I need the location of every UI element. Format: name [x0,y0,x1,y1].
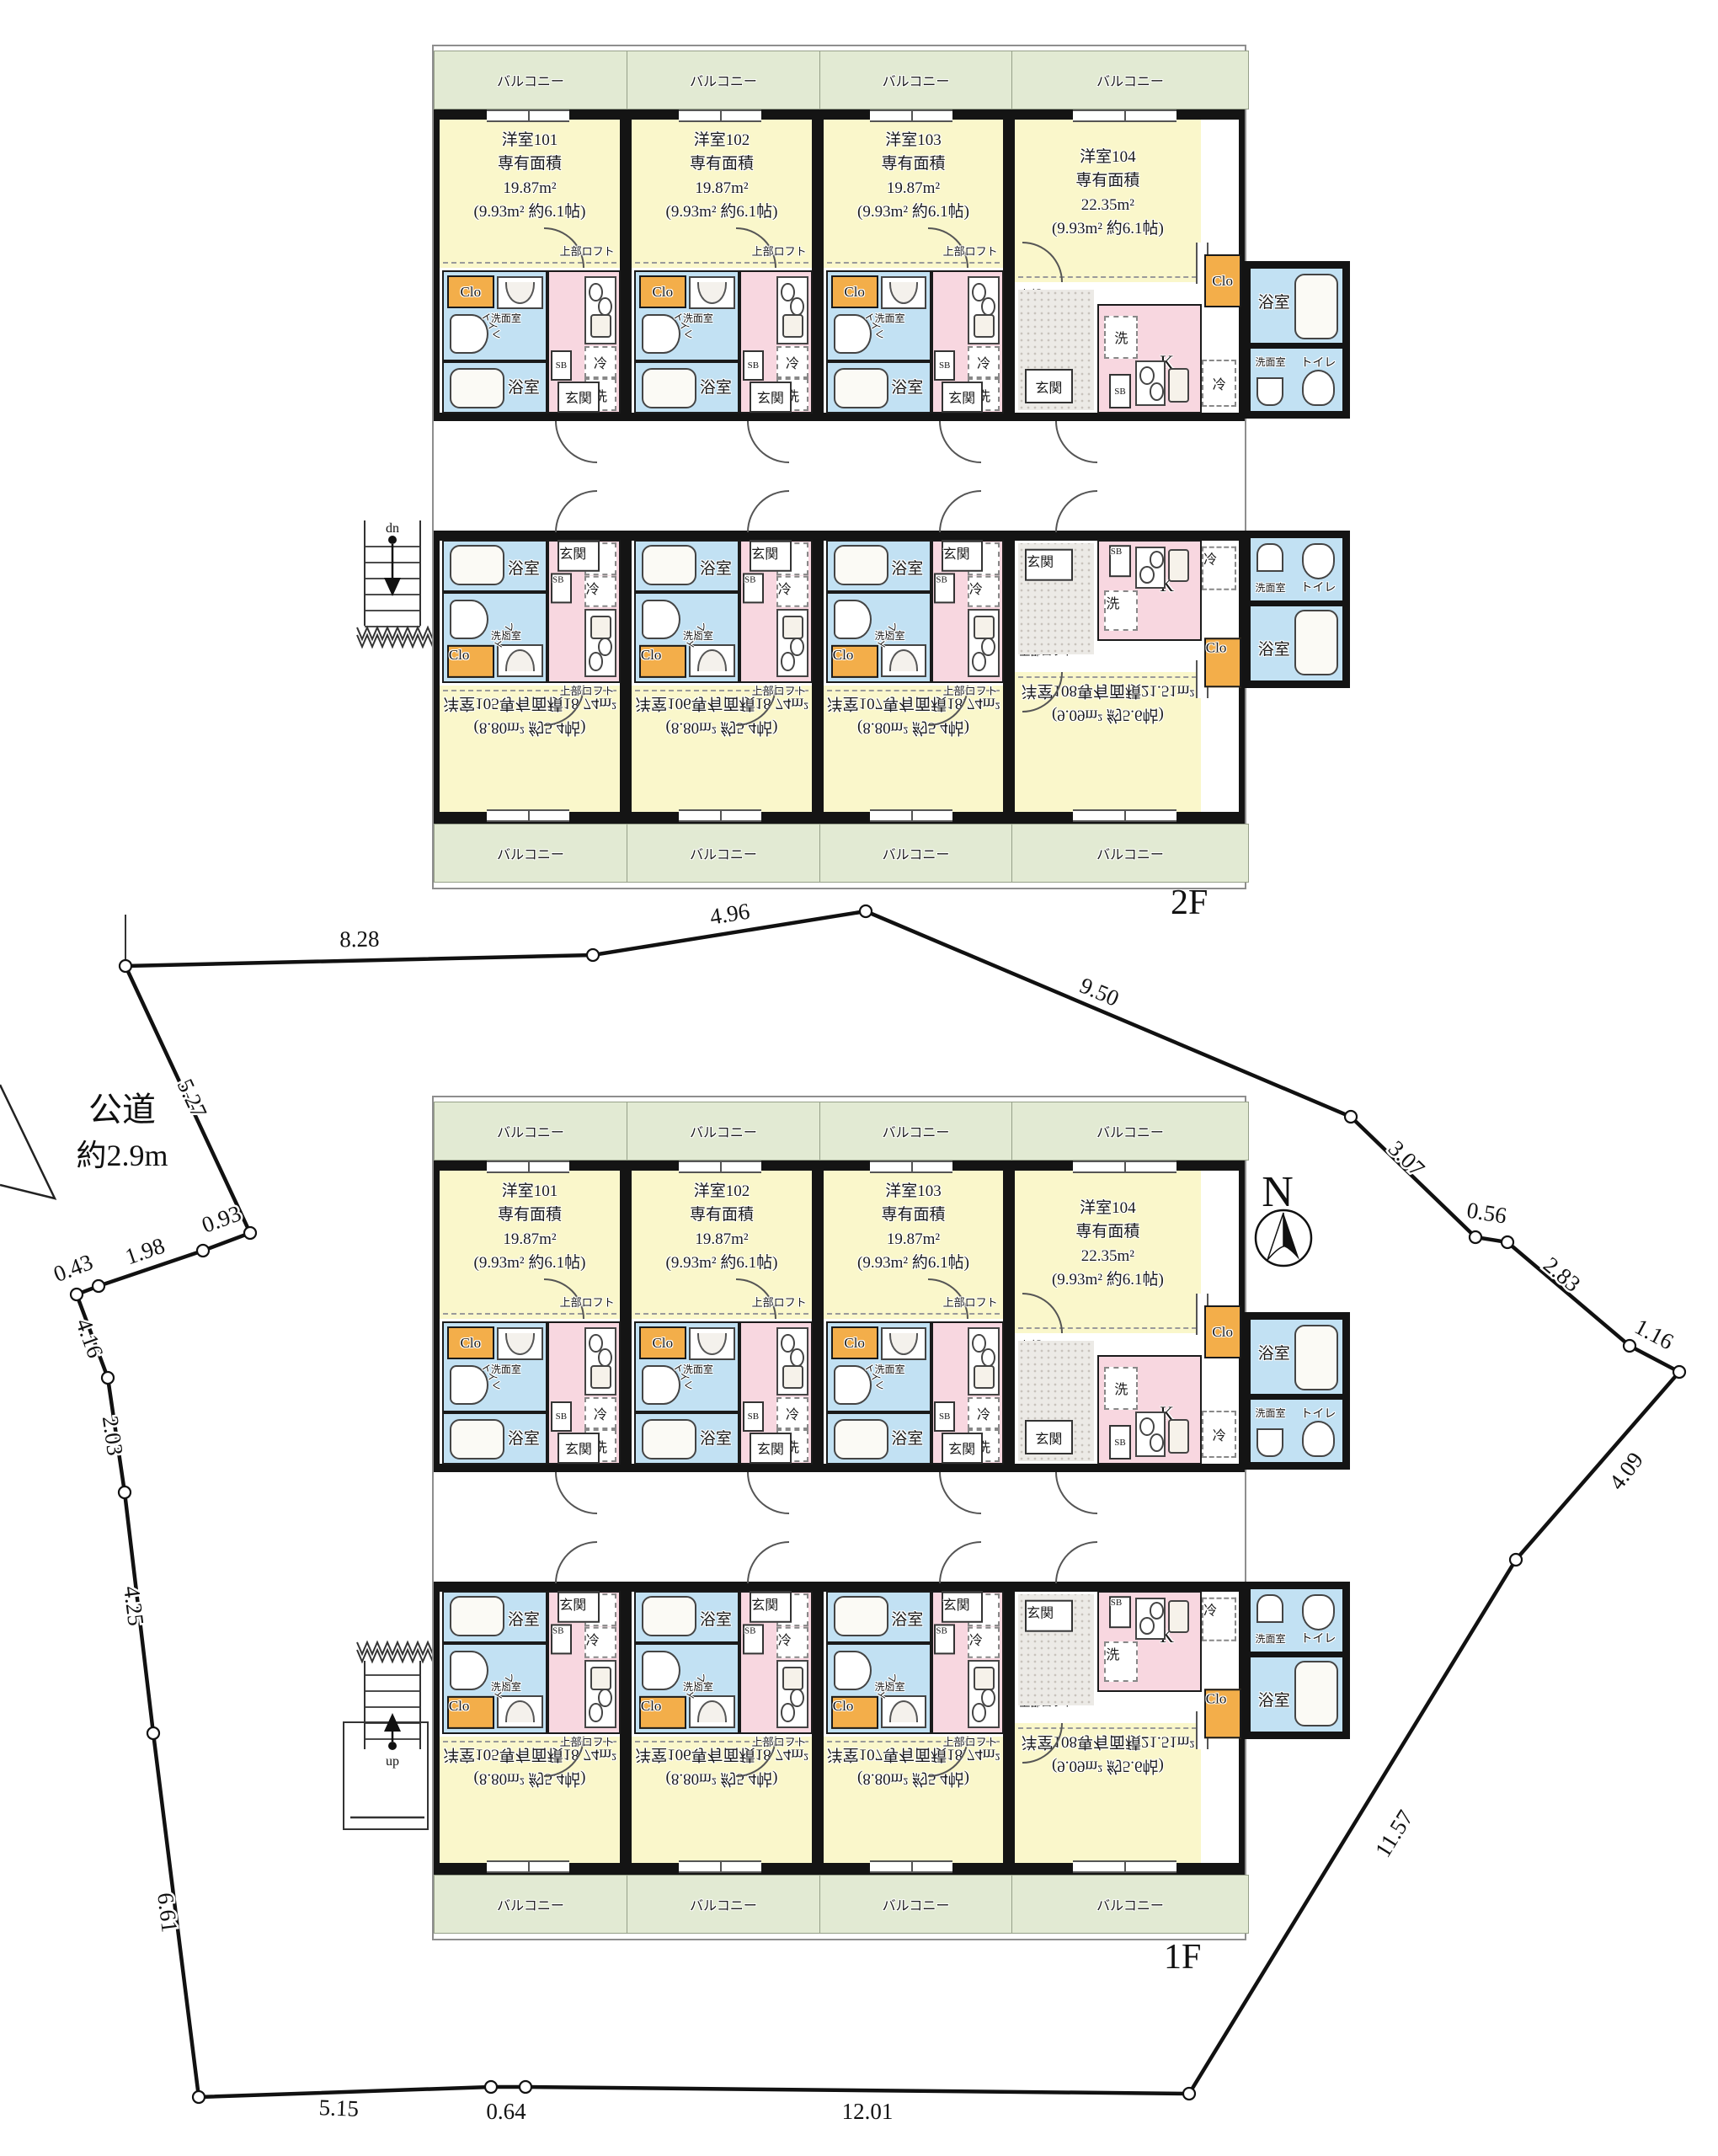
room-name: 洋室105 [443,1742,499,1766]
bathtub-icon [1294,1661,1338,1726]
sink-bowl-icon [889,1333,918,1354]
bath-label: 浴室 [1258,290,1290,312]
unit-108: 洋室108専有面積21.51m²(9.09m² 約5.6帖)上部ロフトClo玄関… [1015,541,1239,812]
entrance-label: 玄関 [942,1592,983,1623]
toilet-label: トイレ [1300,354,1336,371]
balcony-window [487,1161,569,1173]
kitchen-area: 冷洗SB玄関 [931,540,1004,683]
road-width: 約2.9m [51,1131,194,1175]
balcony-label: バルコニー [883,1121,950,1141]
wet-area: Clo洗面室トイレ [826,592,931,682]
entrance-label: 玄関 [942,1433,983,1464]
closet-box: Clo [1204,638,1241,687]
kitchen-sink-icon [974,1667,995,1690]
room-door-arc [1022,242,1063,282]
service-area: Clo洗面室トイレ浴室冷洗SB玄関 [824,268,1003,413]
service-area: Clo洗面室トイレ浴室冷洗SB玄関 [632,541,812,686]
loft-note: 上部ロフト [752,1294,807,1310]
balcony-label: バルコニー [1096,1894,1164,1914]
entrance-label: 玄関 [750,1433,791,1464]
balcony-label: バルコニー [497,1894,564,1914]
dimension-label: 4.09 [1604,1448,1648,1495]
unit-103: 洋室103専有面積19.87m²(9.93m² 約6.1帖)上部ロフトClo洗面… [824,120,1003,413]
loft-dashed-line [827,1313,1000,1315]
toilet-icon [1302,1594,1335,1630]
closet-box: Clo [831,1326,878,1359]
balcony-cell: バルコニー [434,1102,627,1161]
room-area-caption: 専有面積 [824,1203,1003,1228]
room-area: 洋室106専有面積18.74m²(8.80m² 約5.4帖) [632,686,812,812]
closet-box: Clo [639,645,686,678]
service-area: Clo洗面室トイレ浴室冷洗SB玄関 [824,1319,1003,1464]
kitchen-sink-icon [590,1365,611,1389]
toilet-label: トイレ [1300,1630,1336,1646]
closet-box: Clo [831,645,878,678]
stairs-down: dn [357,520,433,647]
closet-box: Clo [1204,1689,1241,1738]
balcony-window [679,809,761,822]
stove-burner-icon [1150,382,1165,401]
balcony-window [870,1161,952,1173]
room-name: 洋室103 [824,129,1003,153]
service-area: Clo洗面室トイレ浴室冷洗SB玄関 [824,541,1003,686]
annex-washroom: 洗面室トイレ [1251,538,1342,600]
stove-icon [1135,1412,1165,1457]
sink-bowl-icon [697,1333,726,1354]
room-area-value: 19.87m² [632,1228,812,1252]
room-area: 洋室106専有面積18.74m²(8.80m² 約5.4帖) [632,1737,812,1863]
stove-burner-icon [598,638,611,656]
bath-label: 浴室 [891,375,923,398]
shoe-box: SB [934,573,955,603]
stove-burner-icon [1150,551,1165,568]
kitchen-area: 冷洗SB玄関 [739,540,812,683]
sink-bowl-icon [505,1700,534,1721]
closet-box: Clo [1204,254,1241,307]
fridge-space: 冷 [776,1627,809,1658]
wet-area: Clo洗面室トイレ [442,270,547,360]
shoe-box: SB [1109,545,1132,577]
balcony-label: バルコニー [690,843,757,863]
entrance-label: 玄関 [1025,1420,1072,1454]
room-loft-area: (9.93m² 約6.1帖) [440,200,620,225]
stove-icon [1135,547,1165,589]
stove-icon [1135,1598,1165,1640]
bathroom: 浴室 [826,1412,931,1465]
boundary-vertex [485,2081,497,2093]
wet-area: Clo洗面室トイレ [634,1321,739,1412]
entrance-label: 玄関 [1025,549,1072,581]
balcony-cell: バルコニー [1011,1102,1249,1161]
dimension-label: 3.07 [1384,1135,1430,1181]
balcony-strip-bottom: バルコニーバルコニーバルコニーバルコニー [434,824,1245,883]
bathtub-icon [834,1596,888,1636]
kitchen-counter-icon [776,609,809,676]
entry-hall: 玄関 [1018,1594,1094,1705]
room-loft-area: (8.80m² 約5.4帖) [474,1766,586,1790]
room-label: 洋室103専有面積19.87m²(9.93m² 約6.1帖) [824,1180,1003,1276]
boundary-vertex [1624,1340,1635,1352]
bathroom: 浴室 [442,540,547,593]
fridge-space: 冷 [776,576,809,607]
room-area-value: 19.87m² [440,177,620,201]
wet-area: Clo洗面室トイレ [634,592,739,682]
unit-106: 洋室106専有面積18.74m²(8.80m² 約5.4帖)上部ロフトClo洗面… [632,1592,812,1863]
entrance-label: 玄関 [558,1433,599,1464]
service-area: Clo洗面室トイレ浴室冷洗SB玄関 [632,1319,812,1464]
bathroom: 浴室 [634,1591,739,1644]
room-area-value: 22.35m² [1015,1245,1201,1269]
toilet-icon [642,1651,680,1690]
room-area-value: 22.35m² [1015,194,1201,218]
stove-burner-icon [1139,366,1155,385]
unit-101: 洋室101専有面積19.87m²(9.93m² 約6.1帖)上部ロフトClo洗面… [440,1171,620,1464]
loft-note: 上部ロフト [943,1294,998,1310]
room-loft-area: (9.93m² 約6.1帖) [824,1251,1003,1276]
stair-arrow-start [388,1742,397,1750]
washroom-label: 洗面室 [1255,580,1285,595]
balcony-window [870,1860,952,1873]
road-name: 公道 [51,1082,194,1131]
boundary-vertex [93,1280,104,1292]
washer-space: 洗 [1104,590,1138,631]
dimension-label: 4.16 [71,1315,108,1362]
shoe-box: SB [551,573,572,603]
shoe-box: SB [551,350,572,381]
room-area: 洋室104専有面積22.35m²(9.93m² 約6.1帖) [1015,1171,1201,1333]
stove-burner-icon [790,1689,803,1707]
room-name: 洋室106 [635,691,691,715]
bath-label: 浴室 [891,556,923,579]
floor-label-1f: 1F [1164,1937,1201,1977]
room-area: 洋室105専有面積18.74m²(8.80m² 約5.4帖) [440,686,620,812]
unit-104: 洋室104専有面積22.35m²(9.93m² 約6.1帖)上部ロフトClo玄関… [1015,120,1239,413]
balcony-cell: バルコニー [627,1102,819,1161]
wet-area: Clo洗面室トイレ [442,1643,547,1733]
unit-102: 洋室102専有面積19.87m²(9.93m² 約6.1帖)上部ロフトClo洗面… [632,1171,812,1464]
loft-dashed-line [443,1313,616,1315]
entrance-label: 玄関 [1025,1600,1072,1632]
sink-bowl-icon [505,649,534,670]
sink-bowl-icon [505,282,534,303]
room-name: 洋室106 [635,1742,691,1766]
washroom-label: 洗面室 [1255,355,1285,369]
room-name: 洋室104 [1015,146,1201,170]
room-area: 洋室108専有面積21.51m²(9.09m² 約5.6帖) [1015,1723,1201,1863]
balcony-window [679,1860,761,1873]
stove-burner-icon [981,638,995,656]
fridge-space: 冷 [776,1397,809,1428]
boundary-vertex [193,2091,205,2103]
loft-note: 上部ロフト [752,243,807,259]
wet-area: Clo洗面室トイレ [442,592,547,682]
loft-note: 上部ロフト [943,243,998,259]
kitchen-counter-icon [584,1660,617,1727]
room-loft-area: (9.93m² 約6.1帖) [632,200,812,225]
room-label: 洋室104専有面積22.35m²(9.93m² 約6.1帖) [1015,1197,1201,1293]
bathroom: 浴室 [826,361,931,414]
fridge-space: 冷 [584,1627,617,1658]
bathtub-icon [1294,1325,1338,1390]
kitchen-sink-icon [1168,1601,1190,1634]
balcony-label: バルコニー [497,843,564,863]
kitchen-area: 冷洗SB玄関 [547,270,620,414]
service-area: Clo洗面室トイレ浴室冷洗SB玄関 [632,1592,812,1737]
toilet-label: トイレ [1300,579,1336,595]
dimension-label: 9.50 [1076,973,1123,1011]
bath-label: 浴室 [891,1426,923,1449]
fridge-space: 冷 [584,576,617,607]
toilet-icon [1302,1421,1335,1457]
bathroom: 浴室 [442,361,547,414]
balcony-label: バルコニー [883,843,950,863]
room-label: 洋室103専有面積19.87m²(9.93m² 約6.1帖) [824,129,1003,225]
balcony-window [679,109,761,122]
balcony-window [870,809,952,822]
room-area-value: 19.87m² [824,1228,1003,1252]
porch [344,1722,428,1829]
unit-106: 洋室106専有面積18.74m²(8.80m² 約5.4帖)上部ロフトClo洗面… [632,541,812,812]
kitchen-sink-icon [782,1365,803,1389]
stove-burner-icon [1139,1617,1155,1635]
kitchen-area: 冷洗SB玄関 [739,1321,812,1465]
sink-icon [1256,1594,1283,1623]
balcony-window [487,1860,569,1873]
entrance-label: 玄関 [942,541,983,572]
shoe-box: SB [1109,1425,1132,1460]
bathtub-icon [1294,274,1338,339]
wet-area: Clo洗面室トイレ [826,1321,931,1412]
kitchen-counter-icon [584,1327,617,1395]
closet-box: Clo [639,1326,686,1359]
shoe-box: SB [743,1401,764,1432]
balcony-cell: バルコニー [1011,824,1249,883]
balcony-cell: バルコニー [627,824,819,883]
stair-direction-label: up [386,1754,399,1769]
bath-annex: 浴室洗面室トイレ [1243,531,1350,688]
balcony-label: バルコニー [883,70,950,90]
room-name: 洋室107 [827,691,883,715]
wet-area: Clo洗面室トイレ [826,270,931,360]
kitchen-sink-icon [974,314,995,338]
closet-box: Clo [831,275,878,308]
sink-bowl-icon [697,649,726,670]
room-area: 洋室105専有面積18.74m²(8.80m² 約5.4帖) [440,1737,620,1863]
bathtub-icon [834,545,888,584]
boundary-vertex [1673,1366,1685,1378]
stove-burner-icon [1139,1417,1155,1436]
bathroom: 浴室 [826,1591,931,1644]
service-area: Clo洗面室トイレ浴室冷洗SB玄関 [440,1592,620,1737]
kitchen-sink-icon [974,1365,995,1389]
shoe-box: SB [934,1401,955,1432]
room-loft-area: (9.09m² 約5.6帖) [1052,1753,1164,1777]
dimension-label: 2.83 [1539,1251,1585,1296]
service-area: Clo洗面室トイレ浴室冷洗SB玄関 [824,1592,1003,1737]
bath-annex: 浴室洗面室トイレ [1243,261,1350,419]
room-area-value: 19.87m² [632,177,812,201]
room-loft-area: (9.93m² 約6.1帖) [1015,1268,1201,1293]
balcony-window [1073,1860,1176,1873]
kitchen-counter-icon [776,276,809,344]
kitchen-counter-icon [776,1660,809,1727]
room-label: 洋室102専有面積19.87m²(9.93m² 約6.1帖) [632,129,812,225]
room-area-caption: 専有面積 [824,152,1003,177]
room-area-caption: 専有面積 [1077,678,1141,702]
stove-burner-icon [981,1689,995,1707]
bath-label: 浴室 [1258,1341,1290,1364]
fridge-space: 冷 [968,576,1000,607]
boundary-vertex [147,1727,159,1739]
balcony-label: バルコニー [1096,1121,1164,1141]
bathroom: 浴室 [634,540,739,593]
bath-annex-inner: 浴室洗面室トイレ [1251,538,1342,680]
sink-bowl-icon [889,282,918,303]
shoe-box: SB [934,1624,955,1654]
wet-area: Clo洗面室トイレ [826,1643,931,1733]
room-area: 洋室107専有面積18.74m²(8.80m² 約5.4帖) [824,686,1003,812]
kitchen-sink-icon [782,1667,803,1690]
loft-dashed-line [827,262,1000,264]
kitchen-area: 冷洗SB玄関 [739,270,812,414]
room-area: 洋室108専有面積21.51m²(9.09m² 約5.6帖) [1015,672,1201,812]
sink-icon [1256,1428,1283,1457]
entrance-label: 玄関 [558,1592,599,1623]
annex-bathroom: 浴室 [1251,1320,1342,1394]
kitchen-area: 冷洗SB玄関 [739,1591,812,1734]
boundary-vertex [860,905,872,917]
bath-annex-inner: 浴室洗面室トイレ [1251,269,1342,411]
boundary-vertex [1510,1554,1522,1566]
room-area: 洋室107専有面積18.74m²(8.80m² 約5.4帖) [824,1737,1003,1863]
boundary-vertex [102,1372,114,1384]
room-name: 洋室102 [632,129,812,153]
loft-note: 上部ロフト [560,243,615,259]
kitchen-sink-icon [782,314,803,338]
sink-bowl-icon [697,1700,726,1721]
fridge-space: 冷 [968,346,1000,377]
balcony-cell: バルコニー [819,1875,1011,1934]
room-loft-area: (9.93m² 約6.1帖) [824,200,1003,225]
room-loft-area: (9.09m² 約5.6帖) [1052,702,1164,726]
balcony-label: バルコニー [690,1121,757,1141]
balcony-window [487,809,569,822]
kitchen-area: 冷洗SB玄関 [547,1321,620,1465]
balcony-cell: バルコニー [819,824,1011,883]
bathtub-icon [642,1419,696,1459]
wet-area: Clo洗面室トイレ [442,1321,547,1412]
balcony-cell: バルコニー [819,1102,1011,1161]
road-label: 公道 約2.9m [51,1082,194,1175]
room-loft-area: (9.93m² 約6.1帖) [440,1251,620,1276]
balcony-label: バルコニー [497,70,564,90]
balcony-window [679,1161,761,1173]
balcony-label: バルコニー [690,70,757,90]
loft-note: 上部ロフト [560,1294,615,1310]
boundary-vertex [120,960,131,972]
balcony-label: バルコニー [1096,70,1164,90]
room-area-caption: 専有面積 [1015,169,1201,194]
dimension-label: 2.03 [98,1414,128,1457]
shoe-box: SB [743,350,764,381]
annex-washroom: 洗面室トイレ [1251,1589,1342,1652]
fridge-space: 冷 [584,1397,617,1428]
unit-107: 洋室107専有面積18.74m²(8.80m² 約5.4帖)上部ロフトClo洗面… [824,541,1003,812]
sink-icon [1256,377,1283,406]
dimension-label: 0.93 [199,1200,245,1237]
bath-label: 浴室 [1258,637,1290,659]
bathroom: 浴室 [634,1412,739,1465]
fridge-space: 冷 [968,1397,1000,1428]
closet-box: Clo [447,1326,494,1359]
bath-label: 浴室 [508,1426,540,1449]
kitchen-sink-icon [590,616,611,639]
shoe-box: SB [1109,374,1132,408]
closet-box: Clo [1204,1305,1241,1358]
annex-bathroom: 浴室 [1251,1657,1342,1732]
bath-label: 浴室 [508,375,540,398]
balcony-strip-bottom: バルコニーバルコニーバルコニーバルコニー [434,1875,1245,1934]
balcony-window [1073,109,1176,122]
unit-101: 洋室101専有面積19.87m²(9.93m² 約6.1帖)上部ロフトClo洗面… [440,120,620,413]
unit-108: 洋室108専有面積21.51m²(9.09m² 約5.6帖)上部ロフトClo玄関… [1015,1592,1239,1863]
unit-105: 洋室105専有面積18.74m²(8.80m² 約5.4帖)上部ロフトClo洗面… [440,1592,620,1863]
bath-label: 浴室 [891,1607,923,1630]
dimension-label: 4.25 [119,1585,149,1628]
shoe-box: SB [1109,1596,1132,1628]
room-area: 洋室104専有面積22.35m²(9.93m² 約6.1帖) [1015,120,1201,282]
annex-washroom: 洗面室トイレ [1251,1400,1342,1462]
kitchen-counter-icon [968,1660,1000,1727]
bathroom: 浴室 [442,1591,547,1644]
room-name: 洋室102 [632,1180,812,1204]
room-area-caption: 専有面積 [632,152,812,177]
bathtub-icon [450,1419,504,1459]
room-label: 洋室101専有面積19.87m²(9.93m² 約6.1帖) [440,1180,620,1276]
washroom-label: 洗面室 [1255,1406,1285,1420]
kitchen-sink-icon [1168,368,1190,403]
sink-icon [689,1327,735,1360]
dimension-label: 11.57 [1370,1806,1418,1862]
closet-box: Clo [639,275,686,308]
dimension-label: 0.64 [486,2099,526,2124]
room-area-value: 21.51m² [1141,1729,1194,1753]
kitchen-sink-icon [590,1667,611,1690]
sink-bowl-icon [505,1333,534,1354]
kitchen-counter-icon [584,276,617,344]
loft-dashed-line [635,262,808,264]
dimension-label: 8.28 [339,926,380,953]
toilet-icon [1302,370,1335,406]
room-door-arc [1022,1293,1063,1333]
room-loft-area: (8.80m² 約5.4帖) [666,1766,778,1790]
entrance-label: 玄関 [558,382,599,413]
toilet-label: トイレ [1300,1405,1336,1422]
dimension-label: 6.61 [152,1892,183,1935]
room-name: 洋室104 [1015,1197,1201,1221]
entry-hall: 玄関 [1018,290,1094,410]
boundary-vertex [119,1486,131,1498]
sink-bowl-icon [697,282,726,303]
room-loft-area: (8.80m² 約5.4帖) [857,715,969,739]
kitchen-area: 冷洗SB玄関 [547,1591,620,1734]
balcony-cell: バルコニー [434,1875,627,1934]
room-name: 洋室105 [443,691,499,715]
room-loft-area: (8.80m² 約5.4帖) [666,715,778,739]
balcony-cell: バルコニー [819,51,1011,109]
stove-burner-icon [790,638,803,656]
shoe-box: SB [551,1401,572,1432]
